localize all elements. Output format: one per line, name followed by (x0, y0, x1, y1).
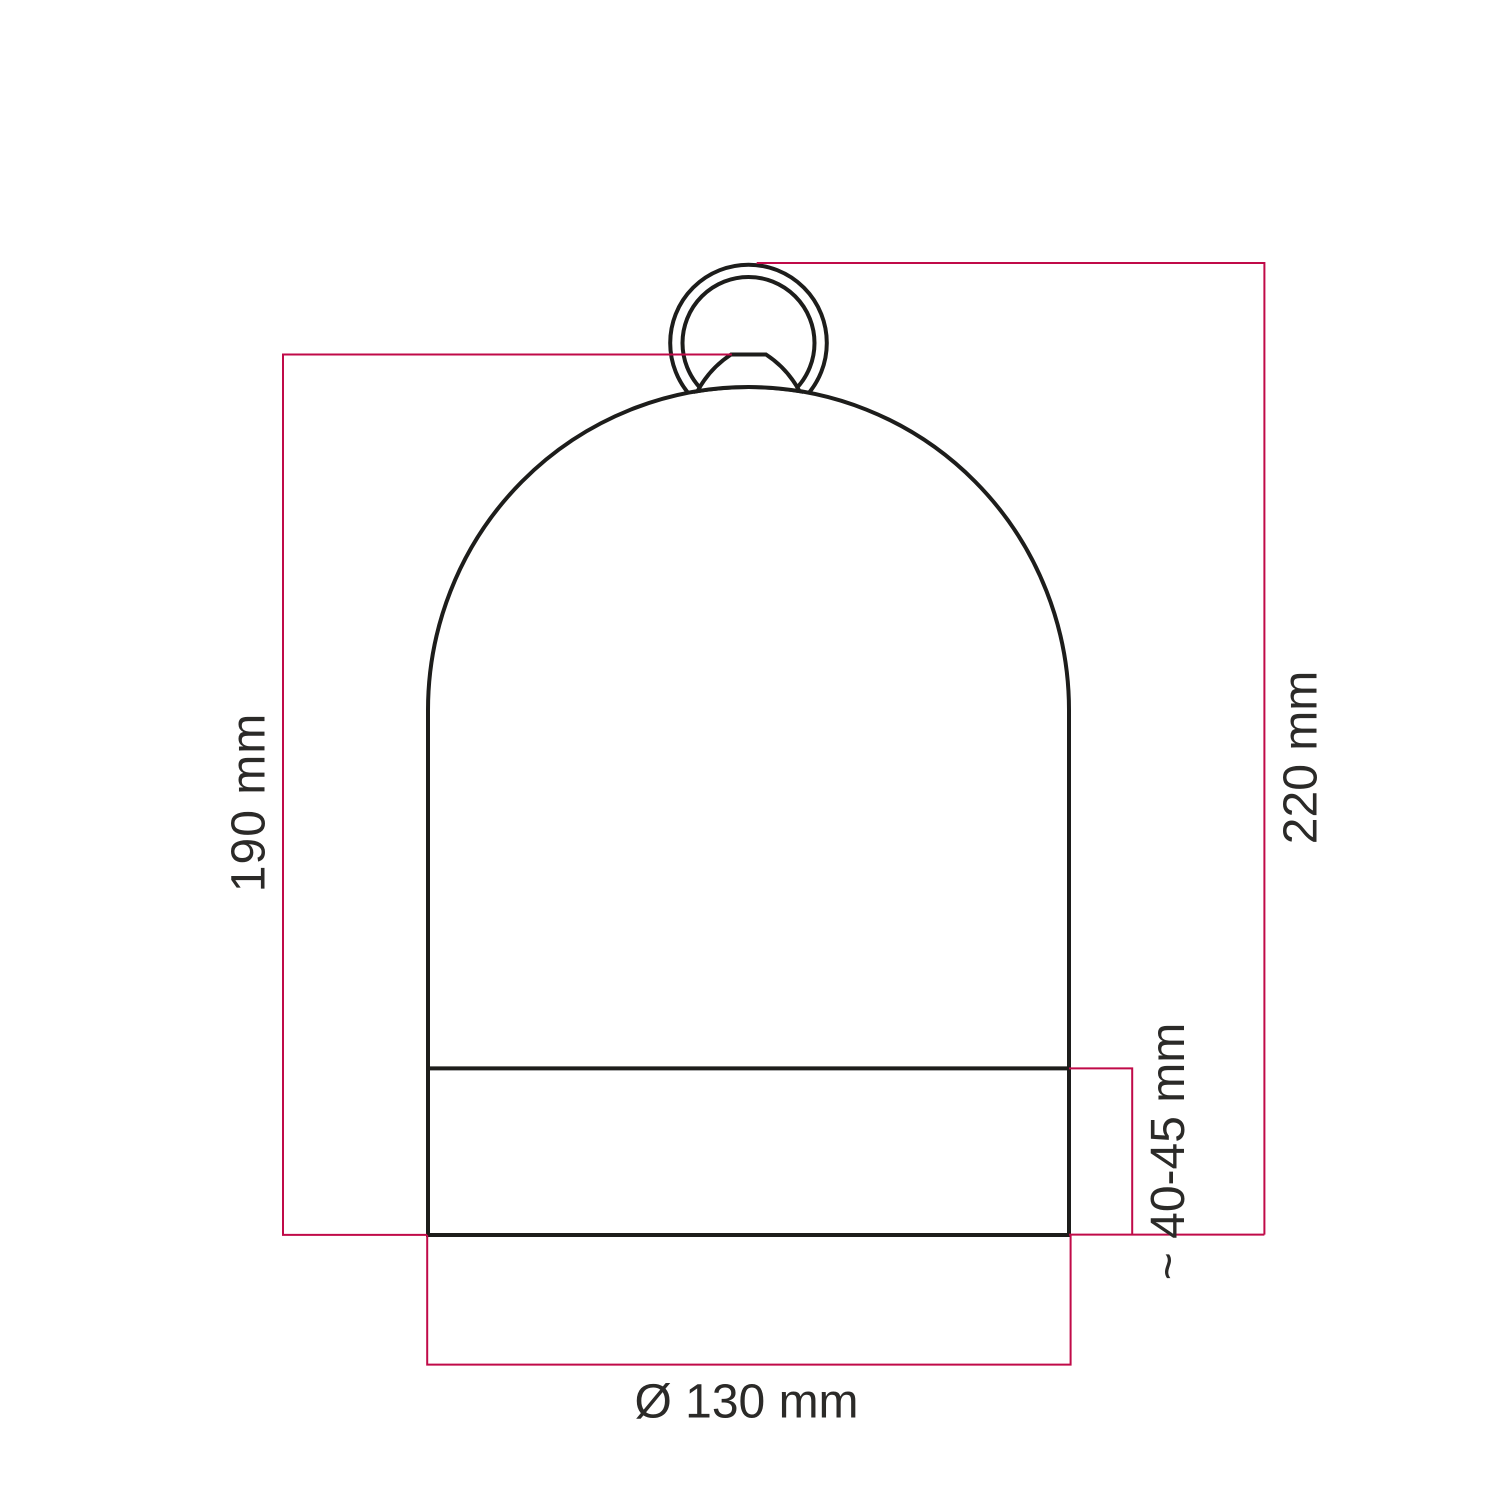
svg-text:~ 40-45 mm: ~ 40-45 mm (1142, 1023, 1195, 1280)
svg-text:190 mm: 190 mm (223, 713, 276, 892)
svg-text:Ø 130 mm: Ø 130 mm (634, 1376, 858, 1429)
svg-text:220 mm: 220 mm (1275, 671, 1328, 844)
